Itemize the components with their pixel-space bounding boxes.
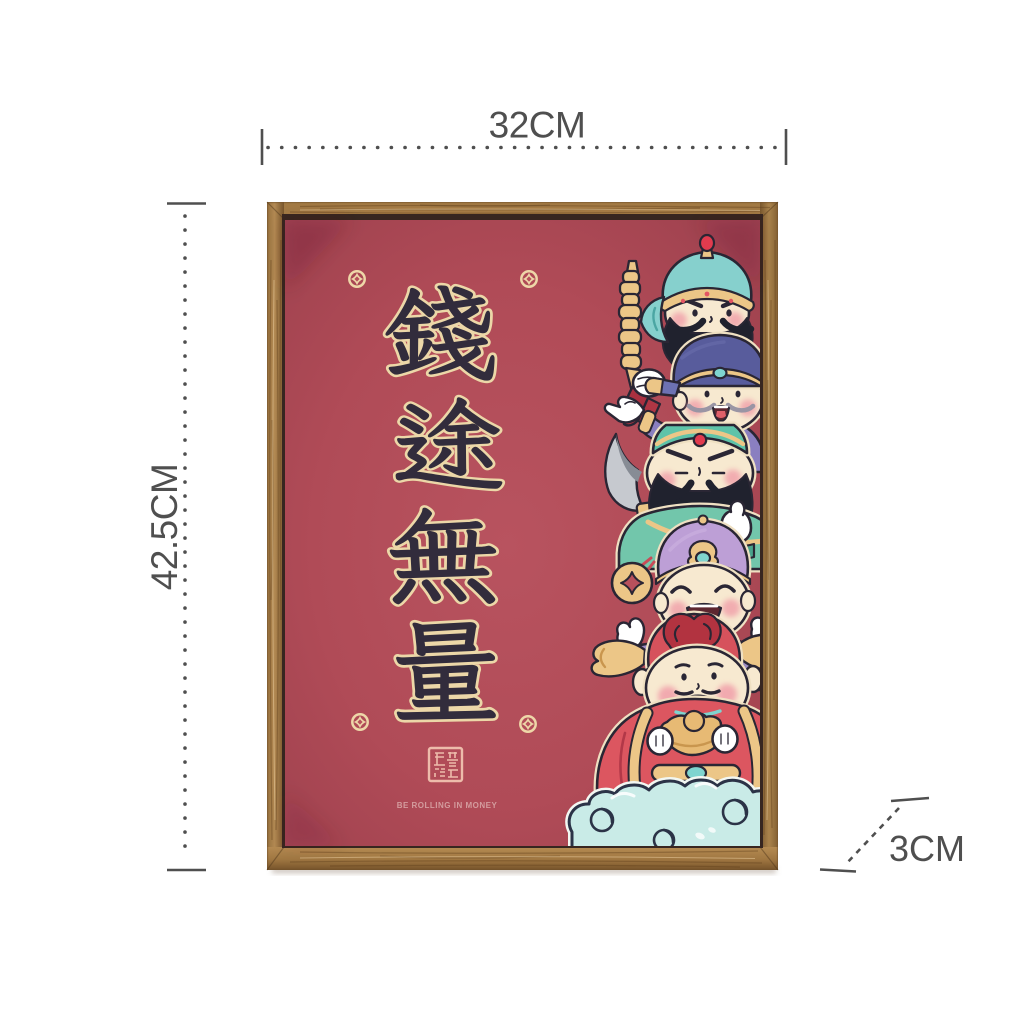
svg-text:3CM: 3CM [889, 828, 965, 869]
svg-text:BE ROLLING IN MONEY: BE ROLLING IN MONEY [397, 801, 498, 810]
svg-text:42.5CM: 42.5CM [144, 464, 185, 591]
svg-text:32CM: 32CM [489, 105, 586, 146]
